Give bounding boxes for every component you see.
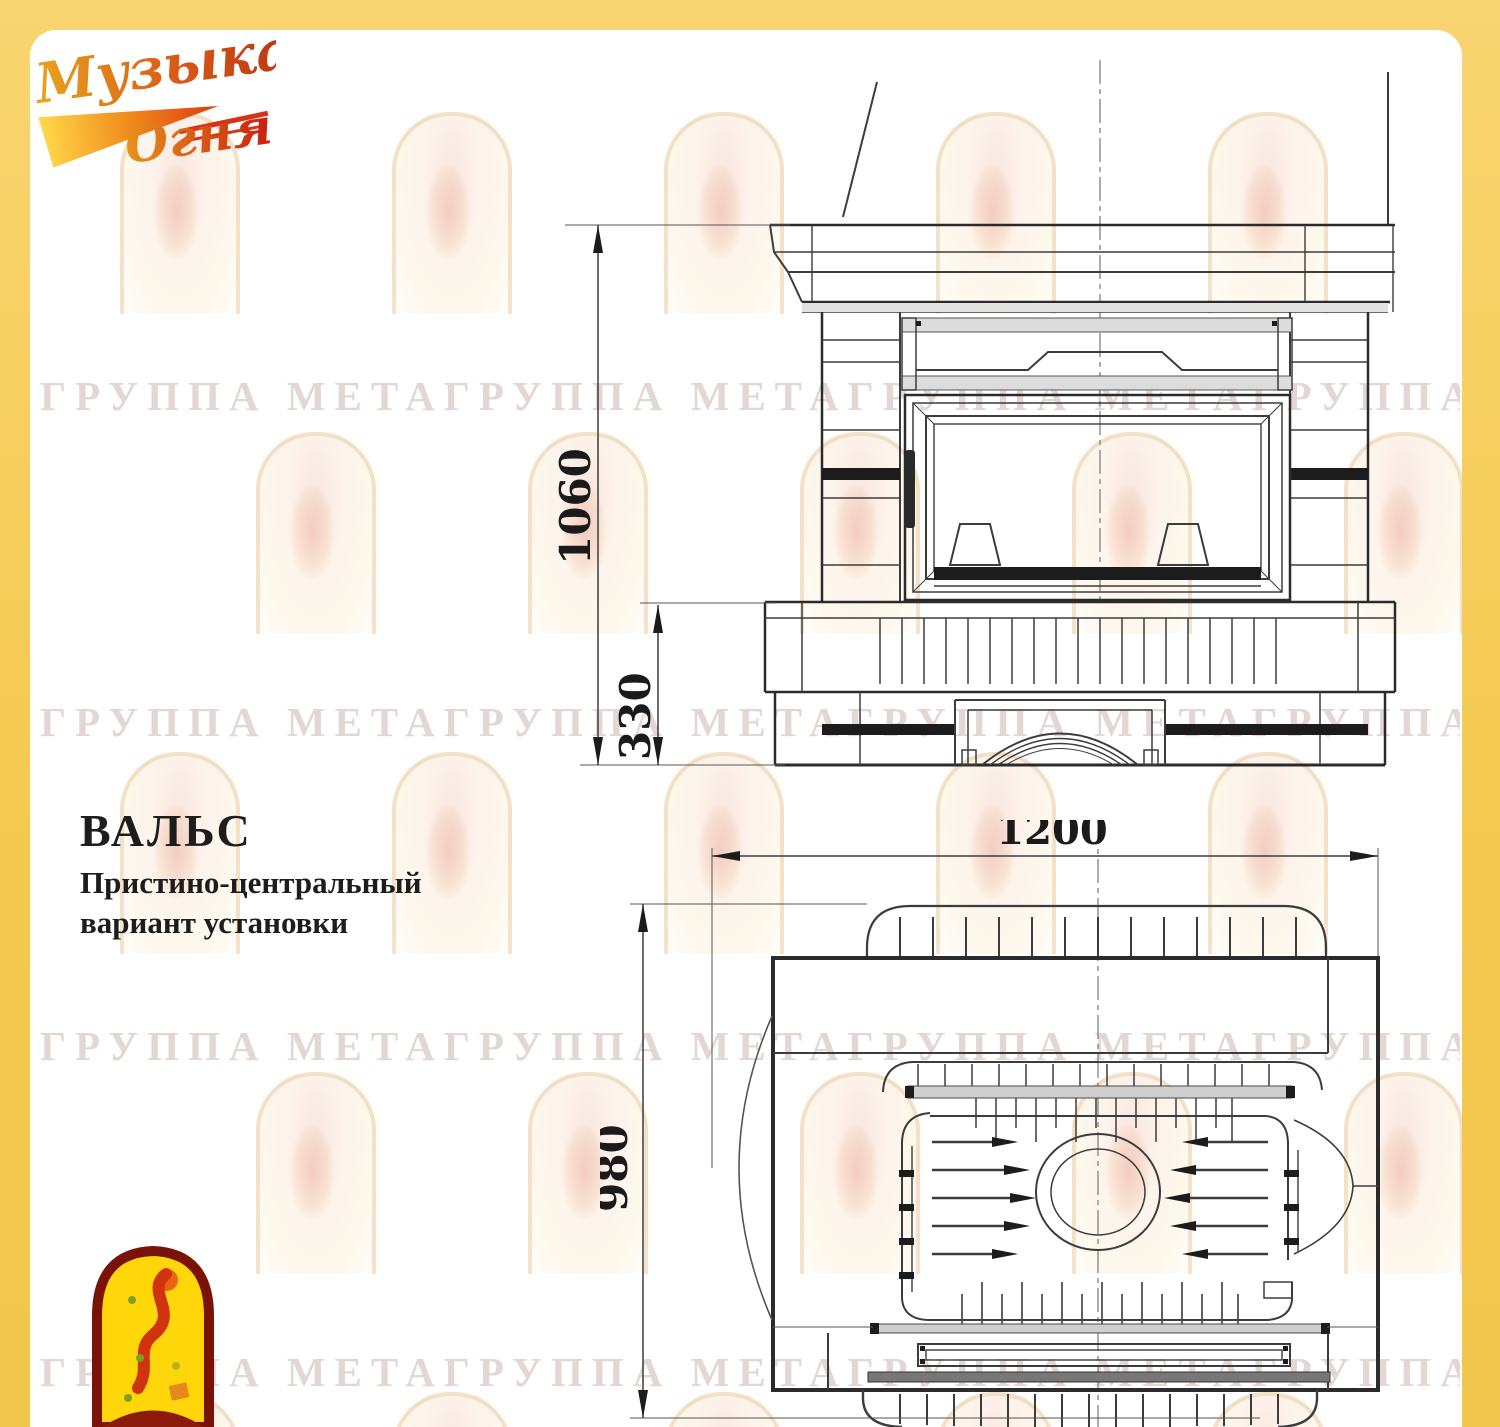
- andiron-left: [950, 524, 1000, 565]
- firebox-door: [905, 395, 1290, 600]
- watermark-arch-icon: [256, 432, 376, 634]
- dimension-label-1200: 1200: [996, 820, 1107, 854]
- variant-line-1: Пристино-центральный: [80, 865, 422, 900]
- base-dark-band: [1165, 724, 1368, 735]
- right-column: [1290, 312, 1368, 602]
- mantel-shelf: [770, 225, 1395, 312]
- front-slat-bump: [863, 1390, 1317, 1427]
- title-block: ВАЛЬС Пристино-центральный вариант устан…: [80, 804, 422, 943]
- model-name: ВАЛЬС: [80, 804, 422, 857]
- dimension-height-total: 1060: [551, 225, 790, 765]
- andiron-right: [1158, 524, 1208, 565]
- plan-view-drawing: 1200: [600, 820, 1500, 1427]
- door-handle: [905, 450, 915, 528]
- lintel-panel: [902, 318, 1292, 390]
- front-elevation-drawing: 1060 330: [550, 60, 1470, 790]
- chamber-step: [1264, 1282, 1292, 1298]
- rear-slat-band: [867, 906, 1326, 958]
- watermark-arch-icon: [256, 1072, 376, 1274]
- watermark-arch-icon: [392, 112, 512, 314]
- logo-group: Музыка Огня: [29, 16, 276, 187]
- company-logo: Музыка Огня: [26, 14, 276, 189]
- base-dark-band: [822, 724, 955, 735]
- fire-chamber: [899, 1113, 1378, 1320]
- variant-description: Пристино-центральный вариант установки: [80, 863, 422, 943]
- variant-line-2: вариант установки: [80, 905, 348, 940]
- base-arch-panel: [955, 700, 1165, 765]
- inner-top-line: [773, 958, 1328, 1053]
- jester-emblem: [88, 1238, 218, 1427]
- airflow-arrows-left: [932, 1137, 1036, 1259]
- airflow-arrows-right: [1164, 1137, 1268, 1259]
- dimension-label-1060: 1060: [551, 448, 600, 565]
- grate-strip: [934, 567, 1261, 580]
- inner-slat-row: [883, 1062, 1322, 1142]
- front-grate-ticks: [962, 1282, 1238, 1324]
- side-arc: [739, 1016, 772, 1320]
- dimension-label-330: 330: [611, 672, 660, 760]
- firebox-front-frame: [918, 1344, 1290, 1366]
- logo-word-2: Огня: [121, 96, 276, 175]
- column-dark-band: [822, 468, 900, 480]
- leader-line: [843, 82, 877, 217]
- catalog-page: { "page": { "frame_color": "#F5CA58", "c…: [0, 0, 1500, 1427]
- watermark-arch-icon: [392, 1392, 512, 1427]
- base-plinth: [775, 692, 1385, 765]
- dimension-depth: 980: [600, 904, 1260, 1418]
- dimension-label-980: 980: [600, 1124, 637, 1212]
- dimension-height-hearth: 330: [611, 603, 775, 765]
- left-column: [822, 312, 900, 602]
- hearth-shelf: [765, 602, 1395, 692]
- column-dark-band: [1290, 468, 1368, 480]
- front-edge-band: [868, 1372, 1330, 1382]
